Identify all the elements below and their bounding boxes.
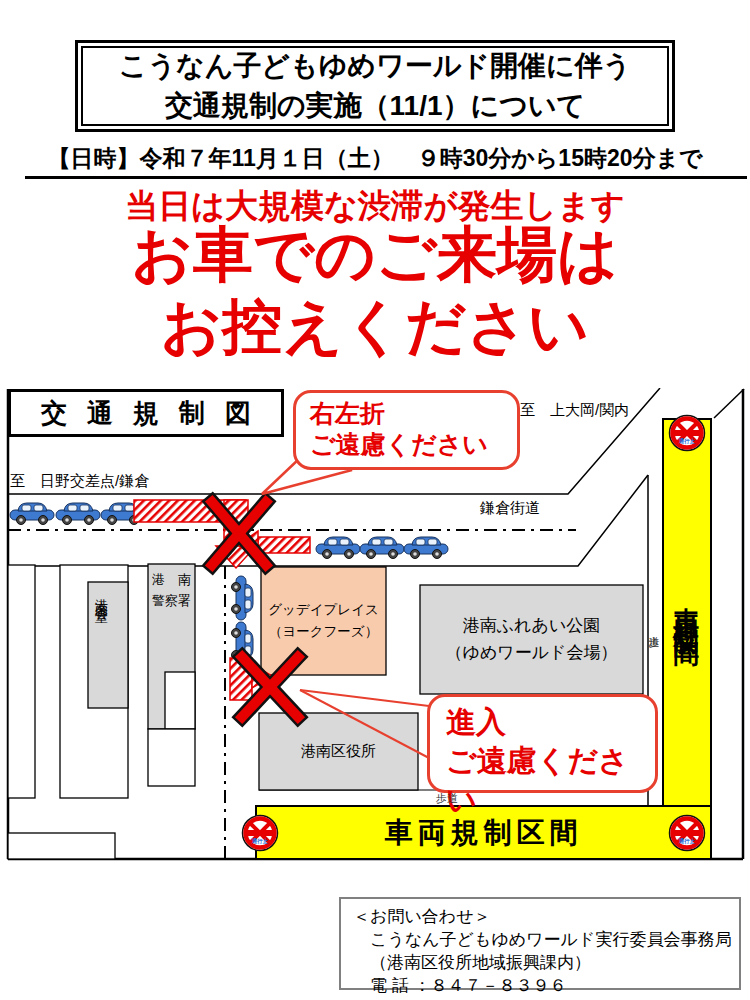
ward-office-label: 港南区役所 <box>259 713 418 790</box>
police-annex-block <box>165 672 195 729</box>
main-title-box: こうなん子どもゆめワールド開催に伴う 交通規制の実施（11/1）について <box>75 40 675 132</box>
callout-no-entry: 進入 ご遠慮ください <box>427 694 658 793</box>
road-name-kamakura-kaido: 鎌倉街道 <box>480 499 540 518</box>
cars-eastbound <box>316 537 448 559</box>
destination-hino: 至 日野交差点/鎌倉 <box>10 472 149 491</box>
police-station-label: 港 南 警察署 <box>148 570 195 612</box>
contact-org: こうなん子どもゆめワールド実行委員会事務局 <box>353 929 739 952</box>
callout-no-turn-line1: 右左折 <box>310 398 517 429</box>
hatch-east-approach <box>258 537 310 553</box>
no-car-warning-line1: お車でのご来場は <box>0 222 750 288</box>
main-title-line1: こうなん子どもゆめワールド開催に伴う <box>83 46 667 86</box>
callout-no-entry-line1: 進入 <box>446 702 655 741</box>
restriction-zone-bottom-label: 車両規制区間 <box>256 806 711 859</box>
gooday-place-label: グッデイプレイス （ヨークフーズ） <box>261 567 386 675</box>
no-car-warning-line2: お控えください <box>0 294 750 360</box>
event-datetime: 【日時】令和７年11月１日（土） ９時30分から15時20分まで <box>0 143 750 174</box>
destination-kamiooka: 至 上大岡/関内 <box>520 401 629 420</box>
contact-dept: （港南区役所地域振興課内） <box>353 952 739 975</box>
gooday-place-label-line1: グッデイプレイス <box>268 599 379 621</box>
park-label: 港南ふれあい公園 （ゆめワールド会場） <box>420 585 643 694</box>
date-underline-rule <box>25 176 747 179</box>
main-title-inner: こうなん子どもゆめワールド開催に伴う 交通規制の実施（11/1）について <box>81 46 669 126</box>
flyer-page: こうなん子どもゆめワールド開催に伴う 交通規制の実施（11/1）について 【日時… <box>0 0 750 1000</box>
building-block-bottom-left <box>8 833 115 859</box>
callout-no-turn: 右左折 ご遠慮ください <box>293 390 520 470</box>
building-block-left1 <box>8 565 35 798</box>
contact-phone: 電 話 ：８４７－８３９６ <box>353 975 739 998</box>
police-lower-block <box>148 729 195 786</box>
gooday-place-label-line2: （ヨークフーズ） <box>269 621 378 643</box>
contact-heading: ＜お問い合わせ＞ <box>353 906 739 929</box>
main-title-line2: 交通規制の実施（11/1）について <box>83 86 667 126</box>
map-title: 交通規制図 <box>8 389 284 437</box>
callout-no-turn-line2: ご遠慮ください <box>310 429 517 460</box>
sidewalk-label-bottom: 歩道 <box>436 791 458 806</box>
public-hall-label: 港南公会堂 <box>92 588 110 703</box>
police-station-label-line2: 警察署 <box>148 591 195 612</box>
police-station-label-line1: 港 南 <box>148 570 195 591</box>
restriction-zone-right-label: 車両規制区間 <box>663 488 711 728</box>
park-label-line2: （ゆめワールド会場） <box>446 640 618 666</box>
cars-westbound <box>10 503 145 525</box>
road-closed-sign-top <box>670 416 705 451</box>
contact-box: ＜お問い合わせ＞ こうなん子どもゆめワールド実行委員会事務局 （港南区役所地域振… <box>339 897 741 990</box>
traffic-regulation-map: 通行止 <box>0 388 750 862</box>
park-label-line1: 港南ふれあい公園 <box>463 613 601 639</box>
